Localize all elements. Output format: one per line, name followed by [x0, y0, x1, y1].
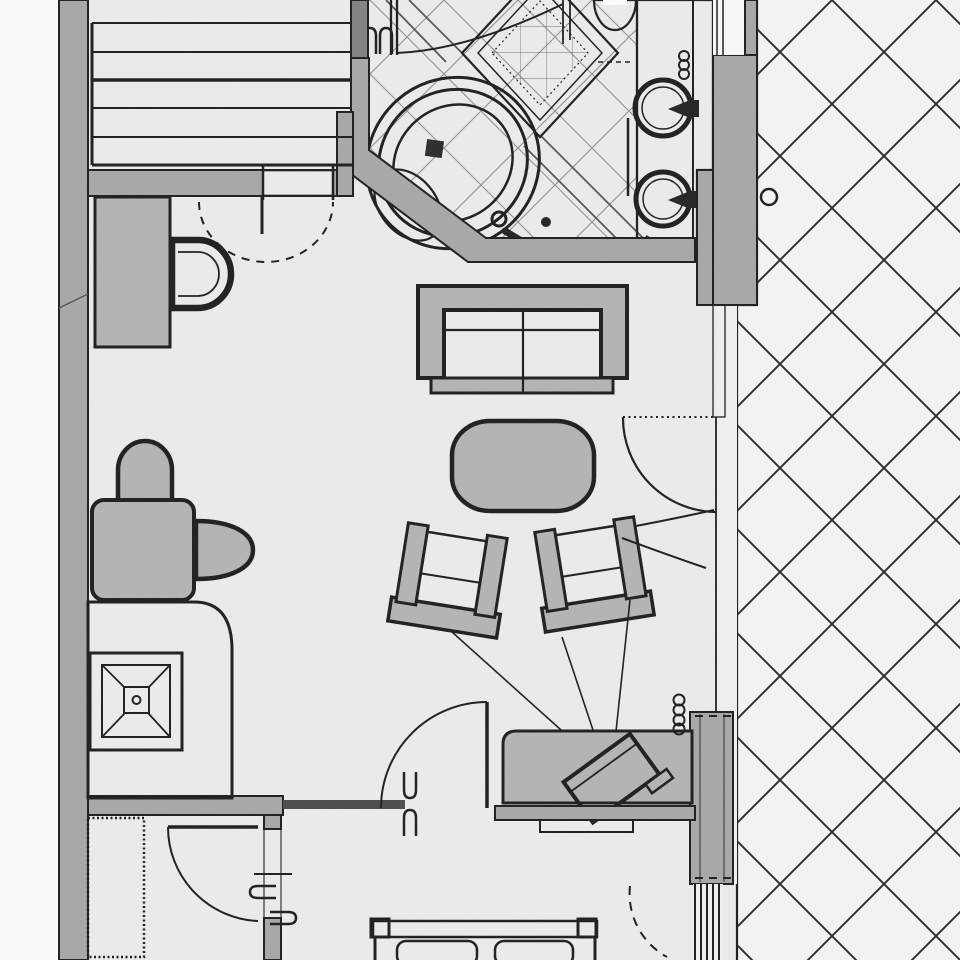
scan-texture-overlay — [0, 0, 960, 960]
floor-plan-drawing — [0, 0, 960, 960]
floor-plan-canvas — [0, 0, 960, 960]
